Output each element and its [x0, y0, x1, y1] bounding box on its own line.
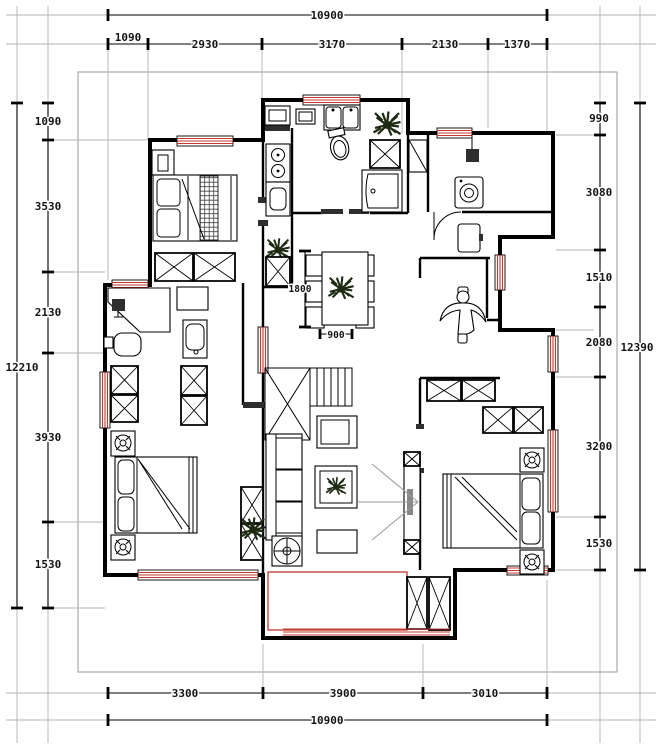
dim-top-1: 1090: [115, 31, 142, 44]
bathroom-toilet: [327, 127, 351, 161]
fridge: [458, 224, 483, 252]
dim-bottom-3: 3010: [472, 687, 499, 700]
bedroom3-nightstand-top: [520, 448, 544, 472]
dim-bottom-total-label: 10900: [310, 714, 343, 727]
bedroom2-cabinet: [177, 287, 208, 310]
balcony: [268, 572, 450, 635]
person-figure: [440, 287, 486, 343]
bathroom-plant: [374, 112, 401, 136]
bedroom2-dresser: [183, 320, 207, 358]
living-room: [266, 416, 420, 566]
balcony-enclosure: [268, 572, 407, 630]
bedroom2-nightstand-top: [111, 431, 135, 456]
dimension-right-chain: 990 3080 1510 2080 3200 1530: [586, 103, 613, 570]
dim-left-1: 1090: [35, 115, 62, 128]
dim-top-5: 1370: [504, 38, 531, 51]
window-bedroom3-east-1: [548, 336, 558, 372]
bedroom3-door-threshold: [416, 424, 424, 429]
balcony-cabinets: [407, 577, 450, 630]
dim-top-3: 3170: [319, 38, 346, 51]
dim-top-total-label: 10900: [310, 9, 343, 22]
bedroom2-wardrobe-left: [111, 366, 138, 422]
dimension-left-chain: 1090 3530 2130 3930 1530: [35, 103, 62, 608]
window-entry-niche: [495, 255, 505, 290]
window-bathroom-top: [303, 95, 360, 105]
dimension-top-chain: 1090 2930 3170 2130 1370: [108, 31, 547, 51]
floorplan-drawing: 10900 1090 2930 3170 2130 1370 3300 3900…: [0, 0, 662, 749]
living-rug: [317, 530, 357, 553]
dim-bottom-2: 3900: [330, 687, 357, 700]
window-bedroom2-bottom: [138, 570, 258, 580]
dim-right-3: 1510: [586, 271, 613, 284]
window-utility-top: [437, 128, 472, 138]
dimension-left-total: 12210: [5, 103, 38, 608]
bedroom3: [427, 380, 544, 574]
dim-left-total-label: 12210: [5, 361, 38, 374]
bedroom1-bed: [153, 175, 237, 241]
dim-right-6: 1530: [586, 537, 613, 550]
bedroom2-corner-desk: [108, 288, 170, 332]
entry-niche: [440, 287, 486, 343]
armchair: [317, 416, 357, 448]
floor-lamp: [272, 536, 302, 566]
bathroom-bathtub: [362, 170, 402, 212]
dim-left-3: 2130: [35, 306, 62, 319]
sofa: [266, 434, 302, 540]
dim-right-4: 2080: [586, 336, 613, 349]
kitchen-stove: [266, 144, 290, 182]
dim-top-2: 2930: [192, 38, 219, 51]
utility-room: [409, 135, 483, 252]
window-bedroom2-left: [100, 372, 110, 428]
bathroom-shower: [370, 140, 400, 168]
dining-chair: [306, 307, 324, 328]
dim-right-1: 990: [589, 112, 609, 125]
dim-left-5: 1530: [35, 558, 62, 571]
bedroom2-tall-cabinet: [240, 487, 265, 560]
tv-stand: [404, 452, 420, 554]
dining-area: 1800 900: [289, 251, 374, 341]
window-bedroom3-east-2: [548, 430, 558, 512]
dimension-bottom-total: 10900: [108, 714, 547, 727]
dimension-top-total: 10900: [108, 9, 547, 22]
window-stairwell: [258, 327, 268, 373]
bedroom3-wardrobe-b: [483, 407, 543, 433]
dim-right-total-label: 12390: [620, 341, 653, 354]
utility-appliance: [466, 149, 479, 162]
bedroom1-door-threshold-2: [258, 220, 268, 226]
dim-right-2: 3080: [586, 186, 613, 199]
coffee-table: [315, 466, 357, 508]
hall-cabinet: [409, 140, 427, 172]
bedroom2-nightstand-bottom: [111, 535, 135, 560]
dining-dimension-width: 900: [320, 329, 352, 341]
dim-bottom-1: 3300: [172, 687, 199, 700]
bedroom3-wardrobe-a: [427, 380, 495, 401]
dimension-bottom-chain: 3300 3900 3010: [108, 687, 547, 700]
bedroom2-bed: [115, 457, 197, 533]
floorplan-sheet: 10900 1090 2930 3170 2130 1370 3300 3900…: [0, 0, 662, 749]
dimension-right-total: 12390: [620, 103, 653, 570]
bedroom2-door-threshold: [243, 402, 265, 408]
kitchen-plant: [266, 238, 289, 259]
bedroom2: [104, 287, 266, 560]
bedroom3-bed: [443, 474, 543, 548]
bedroom2-desk-chair: [104, 333, 141, 356]
utility-door-swing: [434, 212, 461, 240]
dim-top-4: 2130: [432, 38, 459, 51]
kitchen-cabinet-x: [266, 257, 290, 286]
dim-left-2: 3530: [35, 200, 62, 213]
bedroom1: [152, 150, 237, 281]
kitchen: [265, 106, 290, 286]
bedroom2-wardrobe-right: [181, 366, 207, 425]
dim-right-5: 3200: [586, 440, 613, 453]
dining-chair: [306, 255, 324, 276]
bathroom-vanity: [324, 105, 360, 130]
dim-left-4: 3930: [35, 431, 62, 444]
washing-machine: [455, 177, 483, 208]
dim-dining-width: 900: [327, 330, 344, 341]
kitchen-pass-threshold: [265, 125, 290, 131]
dim-dining-length: 1800: [289, 284, 312, 295]
window-bedroom1-top: [177, 136, 233, 146]
bedroom3-nightstand-bottom: [520, 550, 544, 574]
kitchen-sink: [266, 182, 290, 216]
bathroom: [296, 105, 402, 212]
bathroom-door-threshold: [321, 209, 343, 214]
bedroom1-wardrobe: [155, 253, 235, 281]
